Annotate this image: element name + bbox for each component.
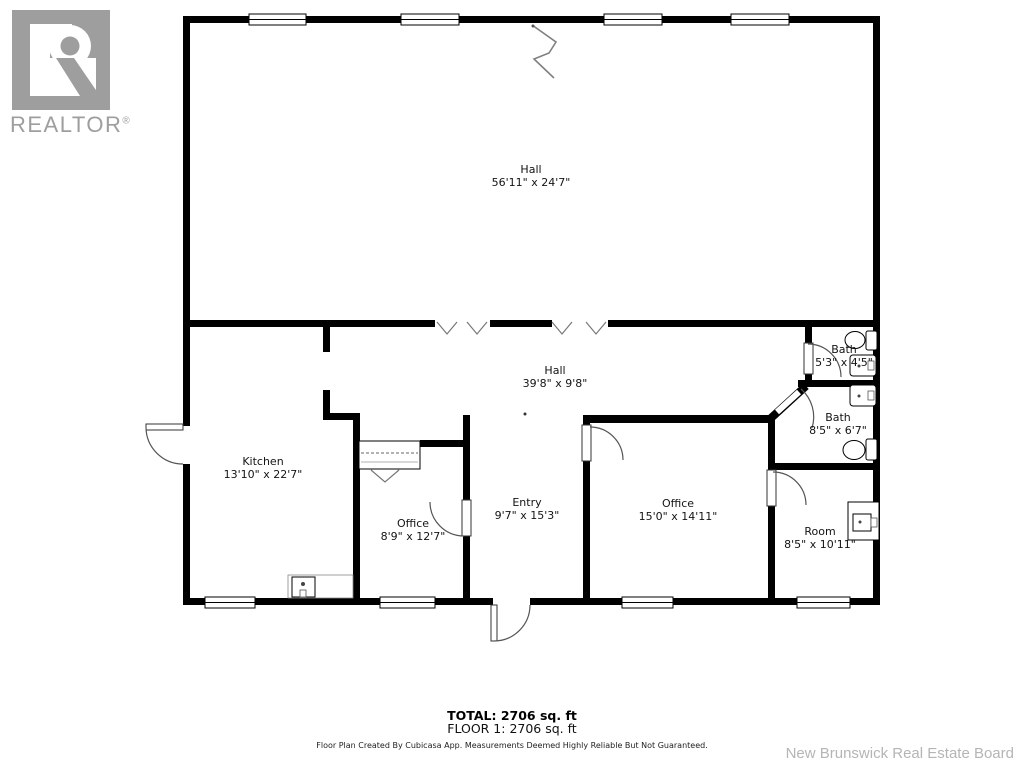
window-icon bbox=[622, 597, 673, 608]
door-arc-icon bbox=[146, 427, 183, 464]
room-label-bath-upper: Bath 5'3" x 4'5" bbox=[815, 343, 873, 369]
room-label-room: Room 8'5" x 10'11" bbox=[784, 525, 856, 551]
room-dims: 8'9" x 12'7" bbox=[381, 530, 446, 543]
window-icon bbox=[604, 14, 662, 25]
board-watermark: New Brunswick Real Estate Board bbox=[786, 745, 1014, 762]
opening-chevron-icon bbox=[467, 322, 487, 334]
floor-area-text: FLOOR 1: 2706 sq. ft bbox=[0, 721, 1024, 736]
room-label-hall-lower: Hall 39'8" x 9'8" bbox=[523, 364, 588, 390]
door-leaf-icon bbox=[804, 343, 813, 374]
room-dims: 9'7" x 15'3" bbox=[495, 509, 560, 522]
door-opening bbox=[777, 392, 799, 412]
room-name: Bath bbox=[809, 411, 867, 424]
sink-icon bbox=[850, 385, 876, 406]
room-dims: 39'8" x 9'8" bbox=[523, 377, 588, 390]
room-name: Hall bbox=[492, 163, 571, 176]
opening-chevron-icon bbox=[437, 322, 457, 334]
door-leaf-icon bbox=[582, 425, 591, 461]
zigzag-symbol bbox=[532, 25, 557, 79]
opening-chevron-icon bbox=[371, 470, 399, 482]
kitchen-sink-icon bbox=[288, 575, 353, 598]
room-label-kitchen: Kitchen 13'10" x 22'7" bbox=[224, 455, 303, 481]
door-arc-icon bbox=[773, 472, 806, 505]
opening-chevron-icon bbox=[552, 322, 572, 334]
room-name: Kitchen bbox=[224, 455, 303, 468]
door-arc-icon bbox=[590, 427, 623, 460]
window-icon bbox=[797, 597, 850, 608]
room-name: Office bbox=[381, 517, 446, 530]
door-leaf-icon bbox=[767, 470, 776, 506]
room-dims: 15'0" x 14'11" bbox=[639, 510, 718, 523]
room-dims: 8'5" x 10'11" bbox=[784, 538, 856, 551]
floor-plan-drawing bbox=[0, 0, 1024, 768]
room-name: Hall bbox=[523, 364, 588, 377]
door-arc-icon bbox=[494, 605, 530, 641]
room-label-bath-lower: Bath 8'5" x 6'7" bbox=[809, 411, 867, 437]
door-opening bbox=[493, 597, 530, 606]
window-icon bbox=[731, 14, 789, 25]
window-icon bbox=[380, 597, 435, 608]
window-icon bbox=[205, 597, 255, 608]
door-leaf-icon bbox=[146, 424, 183, 430]
room-label-hall-upper: Hall 56'11" x 24'7" bbox=[492, 163, 571, 189]
room-name: Bath bbox=[815, 343, 873, 356]
room-dims: 8'5" x 6'7" bbox=[809, 424, 867, 437]
room-label-office-small: Office 8'9" x 12'7" bbox=[381, 517, 446, 543]
door-leaf-icon bbox=[491, 605, 497, 641]
floor-plan-page: REALTOR® bbox=[0, 0, 1024, 768]
room-name: Office bbox=[639, 497, 718, 510]
room-dims: 5'3" x 4'5" bbox=[815, 356, 873, 369]
toilet-icon bbox=[843, 439, 877, 460]
counter-icon bbox=[359, 441, 420, 469]
room-label-office-large: Office 15'0" x 14'11" bbox=[639, 497, 718, 523]
window-icon bbox=[249, 14, 306, 25]
room-dims: 13'10" x 22'7" bbox=[224, 468, 303, 481]
door-leaf-icon bbox=[462, 500, 471, 536]
door-opening bbox=[182, 426, 191, 464]
door-arcs bbox=[146, 344, 841, 641]
room-label-entry: Entry 9'7" x 15'3" bbox=[495, 496, 560, 522]
doors-layer bbox=[146, 343, 841, 641]
room-dims: 56'11" x 24'7" bbox=[492, 176, 571, 189]
opening-chevron-icon bbox=[586, 322, 606, 334]
plan-dot bbox=[524, 413, 527, 416]
room-name: Room bbox=[784, 525, 856, 538]
window-icon bbox=[401, 14, 459, 25]
room-name: Entry bbox=[495, 496, 560, 509]
